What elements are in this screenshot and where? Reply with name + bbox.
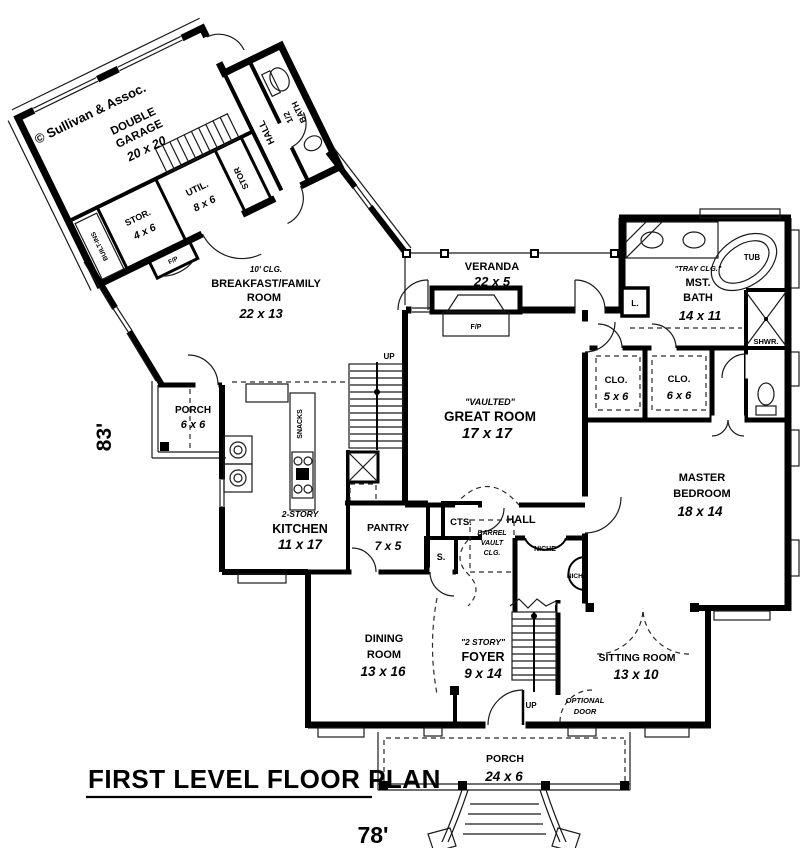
- foyer-size: 9 x 14: [464, 666, 502, 681]
- side-porch-label: PORCH: [175, 405, 211, 416]
- stairs-up-foyer: UP: [525, 701, 537, 710]
- foyer-label: FOYER: [461, 650, 504, 664]
- snacks-label: SNACKS: [297, 409, 304, 439]
- shower-label: SHWR.: [754, 337, 779, 346]
- closet-6x6-size: 6 x 6: [667, 390, 692, 402]
- linen-label: L.: [631, 298, 639, 308]
- breakfast-clg: 10' CLG.: [250, 265, 282, 274]
- optional-door-l1: OPTIONAL: [566, 696, 605, 705]
- side-porch-size: 6 x 6: [181, 419, 206, 431]
- plan-title: FIRST LEVEL FLOOR PLAN: [88, 764, 441, 794]
- barrel-l1: BARREL: [477, 530, 506, 537]
- optional-door-l2: DOOR: [574, 707, 597, 716]
- kitchen: SNACKS 2-STORY KITCHEN 11 x 17: [218, 384, 328, 583]
- niche-a-label: NICHE: [534, 546, 556, 553]
- stor-4x6-size: 4 x 6: [131, 221, 158, 243]
- front-porch-label: PORCH: [486, 753, 524, 765]
- kitchen-label: KITCHEN: [272, 522, 328, 536]
- breakfast-label2: ROOM: [247, 292, 281, 304]
- closets: CLO. 5 x 6 CLO. 6 x 6: [585, 324, 746, 420]
- width-dimension: 78': [357, 822, 388, 848]
- kitchen-size: 11 x 17: [278, 537, 324, 552]
- breakfast-label1: BREAKFAST/FAMILY: [211, 278, 321, 290]
- master-bedroom: MASTER BEDROOM 18 x 14: [555, 416, 788, 654]
- sitting-size: 13 x 10: [613, 667, 659, 682]
- height-dimension: 83': [93, 423, 116, 451]
- floor-plan-drawing: © Sullivan & Assoc. DOUBLE GARAGE 20 x 2…: [0, 0, 800, 848]
- util-size: 8 x 6: [191, 193, 217, 214]
- fireplace-wing-label: F/P: [167, 255, 180, 266]
- coats-label: CTS.: [450, 517, 472, 528]
- master-bedroom-l2: BEDROOM: [673, 488, 730, 500]
- kitchen-note: 2-STORY: [281, 509, 320, 519]
- barrel-l3: CLG.: [484, 550, 501, 557]
- hall-core: PANTRY 7 x 5 CTS. S. HALL BARREL VAULT C…: [308, 503, 588, 695]
- dining-l1: DINING: [365, 633, 404, 645]
- sitting-label: SITTING ROOM: [599, 652, 676, 664]
- closet-5x6-size: 5 x 6: [604, 391, 629, 403]
- dining-size: 13 x 16: [360, 664, 406, 679]
- sitting-room: SITTING ROOM 13 x 10 OPTIONAL DOOR: [558, 604, 708, 731]
- pantry-size: 7 x 5: [375, 539, 402, 553]
- barrel-l2: VAULT: [481, 540, 504, 547]
- tub-label: TUB: [744, 253, 761, 262]
- master-bath-label2: BATH: [683, 292, 713, 304]
- pantry-label: PANTRY: [367, 522, 409, 534]
- great-room-label: GREAT ROOM: [444, 409, 536, 424]
- great-room-size: 17 x 17: [462, 425, 513, 442]
- master-bath-label1: MST.: [685, 277, 710, 289]
- master-bedroom-l1: MASTER: [679, 472, 726, 484]
- niche-b-label: NICHE: [567, 573, 588, 580]
- closet-6x6-label: CLO.: [668, 374, 691, 385]
- foyer-note: "2 STORY": [461, 637, 506, 647]
- master-bath-clg: "TRAY CLG.": [675, 264, 722, 273]
- closet-5x6-label: CLO.: [605, 375, 628, 386]
- floor-plan-page: © Sullivan & Assoc. DOUBLE GARAGE 20 x 2…: [0, 0, 800, 848]
- dining-l2: ROOM: [367, 649, 401, 661]
- breakfast-area: PORCH 6 x 6 10' CLG. BREAKFAST/FAMILY RO…: [84, 148, 411, 458]
- veranda-label: VERANDA: [465, 261, 519, 273]
- great-room-clg: "VAULTED": [465, 397, 515, 407]
- master-bedroom-size: 18 x 14: [677, 504, 723, 519]
- fireplace-great-label: F/P: [471, 324, 482, 331]
- stairs-up-main: UP: [383, 352, 395, 361]
- front-porch-size: 24 x 6: [484, 769, 523, 784]
- breakfast-size: 22 x 13: [238, 306, 283, 321]
- shelf-label: S.: [437, 552, 446, 562]
- master-bath-size: 14 x 11: [679, 308, 721, 323]
